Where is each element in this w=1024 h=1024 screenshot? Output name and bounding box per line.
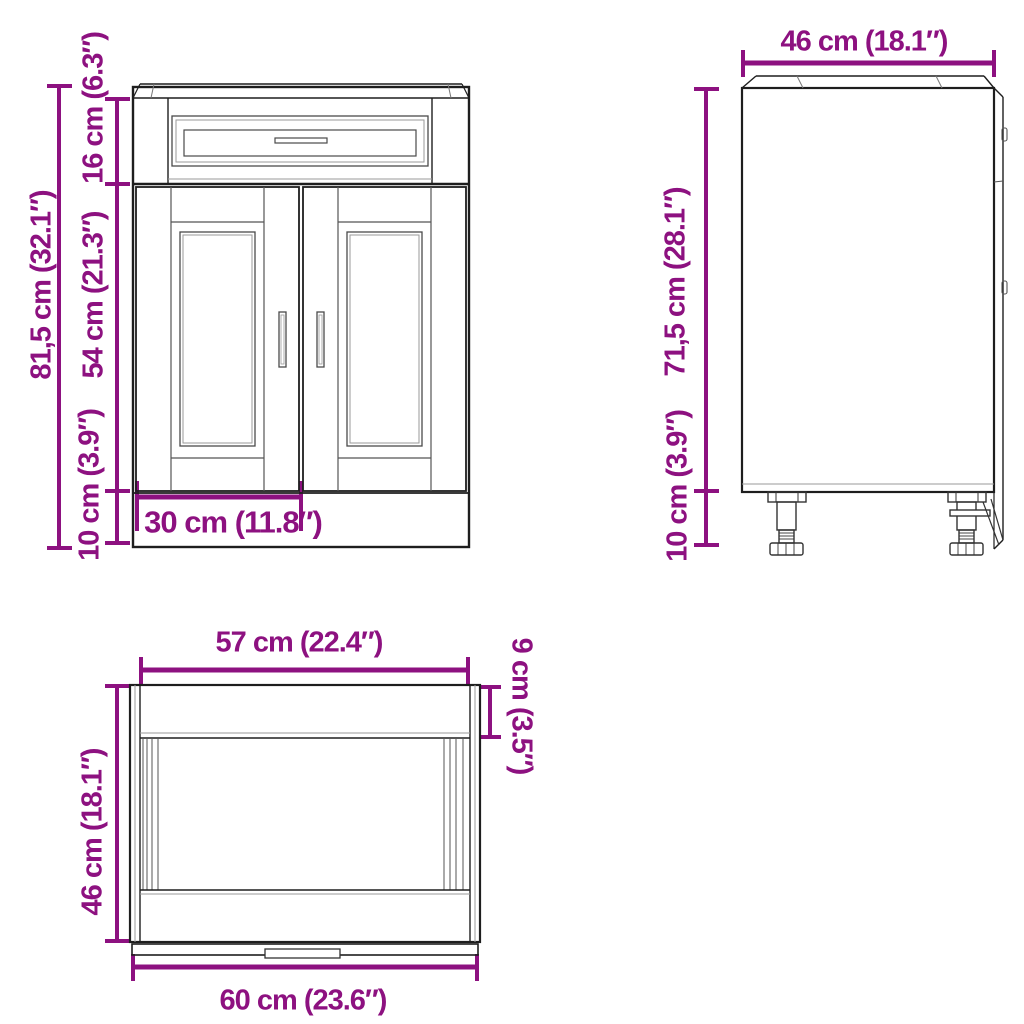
top-view-drawing bbox=[105, 657, 501, 981]
front-view-drawing bbox=[47, 84, 469, 548]
side-panel bbox=[742, 76, 1007, 555]
adjustable-foot-front bbox=[768, 492, 806, 555]
handle-bottom-view bbox=[265, 949, 340, 958]
side-view-drawing bbox=[694, 50, 1007, 555]
dim-label-rail-depth: 9 cm (3.5″) bbox=[507, 638, 536, 775]
door-handle-left bbox=[279, 312, 286, 367]
top-view-outline bbox=[130, 685, 480, 958]
dim-label-top-depth: 46 cm (18.1″) bbox=[79, 749, 108, 916]
cabinet-dimension-diagram: 81,5 cm (32.1″) 16 cm (6.3″) 54 cm (21.3… bbox=[0, 0, 1024, 1024]
side-dimension-lines bbox=[694, 50, 994, 545]
dim-label-overall-height: 81,5 cm (32.1″) bbox=[28, 190, 57, 379]
door-handle-right bbox=[317, 312, 324, 367]
front-cabinet-outline bbox=[133, 84, 469, 547]
door-right bbox=[303, 187, 466, 491]
front-rail bbox=[140, 890, 470, 894]
door-left bbox=[136, 187, 299, 491]
adjustable-foot-back bbox=[948, 492, 1003, 555]
drawer-front bbox=[133, 98, 469, 184]
drawer-handle bbox=[275, 138, 327, 143]
top-dimension-lines bbox=[105, 657, 501, 981]
door-edge-profile bbox=[994, 88, 1007, 549]
dim-label-drawer-height: 16 cm (6.3″) bbox=[80, 32, 109, 184]
dim-label-body-height: 71,5 cm (28.1″) bbox=[662, 187, 691, 376]
foot-brace bbox=[983, 502, 999, 545]
dim-label-side-depth: 46 cm (18.1″) bbox=[781, 28, 948, 57]
back-rail bbox=[140, 733, 470, 738]
side-edge-lines bbox=[143, 738, 463, 890]
dim-label-doors-height: 54 cm (21.3″) bbox=[80, 212, 109, 379]
dim-label-plinth-height: 10 cm (3.9″) bbox=[76, 409, 105, 561]
dim-label-carcass-width: 57 cm (22.4″) bbox=[216, 629, 383, 658]
dim-label-front-width: 60 cm (23.6″) bbox=[220, 987, 387, 1016]
dim-label-feet-height: 10 cm (3.9″) bbox=[664, 410, 693, 562]
dim-label-door-width: 30 cm (11.8″) bbox=[144, 507, 322, 538]
